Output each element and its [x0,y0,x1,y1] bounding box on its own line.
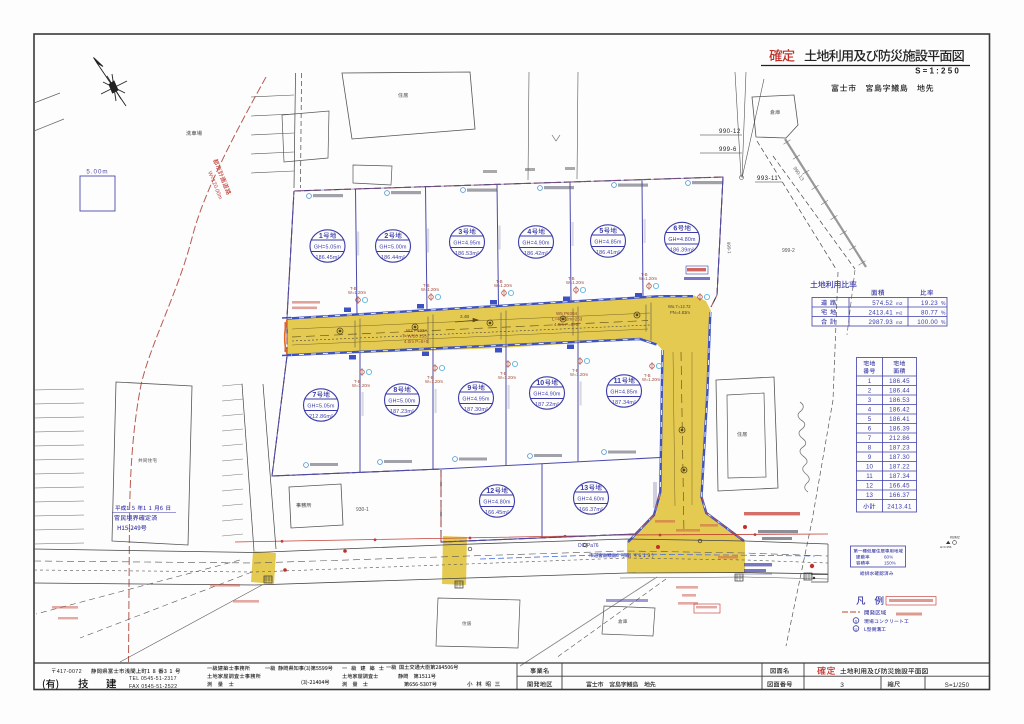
svg-text:2987.93: 2987.93 [869,319,894,326]
svg-text:GH=4.95m: GH=4.95m [453,241,481,247]
svg-text:1: 1 [868,378,872,385]
svg-text:5: 5 [599,228,603,235]
svg-text:PN=4.83m: PN=4.83m [670,310,690,315]
svg-text:GH=5.00m: GH=5.00m [379,245,407,251]
svg-text:GH=4.80m: GH=4.80m [483,500,511,506]
svg-text:S=1/250: S=1/250 [945,683,970,689]
svg-text:W2 P633A: W2 P633A [406,328,428,333]
svg-text:186.39m²: 186.39m² [670,247,694,253]
svg-text:m2: m2 [896,320,903,325]
svg-text:212.86: 212.86 [889,435,910,442]
svg-text:8: 8 [868,445,872,452]
svg-text:1: 1 [319,233,323,240]
svg-text:W=1.20m: W=1.20m [348,290,367,295]
svg-text:FAX 0545-51-2522: FAX 0545-51-2522 [129,684,177,690]
svg-text:2413.41: 2413.41 [869,309,894,316]
svg-text:W=1.20m: W=1.20m [566,280,585,285]
svg-text:T=W/20 253: T=W/20 253 [402,334,427,339]
svg-text:GH=5.00m: GH=5.00m [388,399,416,405]
svg-text:8: 8 [393,387,397,394]
svg-text:6: 6 [868,426,872,433]
svg-text:m2: m2 [896,301,903,306]
svg-text:187.22m²: 187.22m² [535,402,559,408]
svg-text:H=4.356: H=4.356 [940,545,952,549]
svg-text:W=1.20m: W=1.20m [425,379,444,384]
svg-text:19.23: 19.23 [921,300,938,307]
svg-text:5.00m: 5.00m [86,169,108,176]
svg-text:999-1: 999-1 [726,242,732,255]
svg-text:Wo.7=12.72: Wo.7=12.72 [668,304,691,309]
svg-text:150%: 150% [884,561,896,566]
svg-text:186.53: 186.53 [889,397,910,404]
svg-text:GH=4.85m: GH=4.85m [594,240,622,246]
svg-text:S: S [855,619,858,624]
svg-text:10: 10 [536,380,544,387]
svg-text:4: 4 [868,407,872,414]
svg-text:186.42: 186.42 [889,407,910,414]
svg-text:KBM2: KBM2 [950,536,960,540]
svg-text:9: 9 [467,385,471,392]
svg-text:3: 3 [458,229,462,236]
svg-text:187.23m²: 187.23m² [390,409,414,415]
svg-text:186.44: 186.44 [889,388,910,395]
svg-text:W=1.20m: W=1.20m [494,283,513,288]
svg-text:166.45m²: 166.45m² [485,510,509,516]
svg-text:GH=5.05m: GH=5.05m [307,404,335,410]
svg-text:W=1.20m: W=1.20m [642,377,661,382]
svg-text:GH=5.05m: GH=5.05m [314,245,342,251]
svg-text:12: 12 [866,483,873,490]
svg-text:GH=4.90m: GH=4.90m [522,241,550,247]
svg-text:〒417-0072: 〒417-0072 [51,668,82,675]
svg-text:187.30m²: 187.30m² [464,407,488,413]
svg-text:3: 3 [840,682,844,689]
svg-text:166.45: 166.45 [889,483,910,490]
svg-text:GH=4.80m: GH=4.80m [668,237,696,243]
svg-text:186.41: 186.41 [889,416,910,423]
svg-text:6: 6 [673,225,677,232]
svg-text:930-1: 930-1 [356,507,369,513]
svg-text:990-12: 990-12 [719,129,741,135]
svg-text:187.23: 187.23 [889,445,910,452]
svg-text:187.22: 187.22 [889,464,910,471]
svg-text:DC(Pa76: DC(Pa76 [578,543,599,549]
svg-text:999-2: 999-2 [782,248,795,254]
svg-text:60%: 60% [884,555,893,560]
svg-text:186.53m²: 186.53m² [455,251,479,257]
svg-text:187.34m²: 187.34m² [612,400,636,406]
svg-text:186.44m²: 186.44m² [381,255,405,261]
svg-text:10: 10 [866,464,873,471]
svg-text:2: 2 [868,388,872,395]
svg-text:2413.41: 2413.41 [887,504,912,511]
svg-text:L=48.72m=253: L=48.72m=253 [552,317,583,322]
svg-text:4: 4 [527,229,531,236]
svg-text:574.52: 574.52 [872,300,893,307]
svg-text:11: 11 [866,473,873,480]
svg-text:7: 7 [868,435,872,442]
svg-text:GH=4.85m: GH=4.85m [610,390,638,396]
svg-text:4.0m P=6+5: 4.0m P=6+5 [404,339,429,344]
svg-text:%: % [941,320,946,326]
svg-text:13: 13 [580,485,588,492]
svg-text:12: 12 [486,488,494,495]
svg-text:U: U [855,627,858,632]
svg-text:186.45m²: 186.45m² [316,255,340,261]
svg-text:186.39: 186.39 [889,426,910,433]
svg-text:5: 5 [868,416,872,423]
svg-text:2: 2 [384,233,388,240]
svg-text:%: % [941,301,946,307]
svg-text:7: 7 [312,392,316,399]
svg-text:3.4B: 3.4B [460,314,469,319]
svg-text:GH=4.60m: GH=4.60m [577,497,605,503]
svg-text:186.45: 186.45 [889,378,910,385]
svg-text:999-6: 999-6 [719,147,737,153]
svg-text:13: 13 [866,492,873,499]
svg-text:W=1.20m: W=1.20m [639,276,658,281]
svg-text:166.37m²: 166.37m² [579,507,603,513]
svg-text:4.0m P=6+5: 4.0m P=6+5 [554,322,579,327]
svg-text:11: 11 [614,378,622,385]
svg-text:212.86m²: 212.86m² [309,414,333,420]
svg-text:W=1.20m: W=1.20m [352,383,371,388]
svg-text:m2: m2 [896,310,903,315]
svg-text:W=1.20m: W=1.20m [498,375,517,380]
svg-text:187.30: 187.30 [889,454,910,461]
svg-text:S=1:250: S=1:250 [915,67,961,76]
svg-text:9: 9 [868,454,872,461]
svg-text:W=1.20m: W=1.20m [570,372,589,377]
svg-text:W=1.20m: W=1.20m [421,287,440,292]
svg-text:80.77: 80.77 [921,309,938,316]
svg-text:TEL 0545-51-2317: TEL 0545-51-2317 [129,676,177,682]
svg-text:100.00: 100.00 [917,319,938,326]
svg-text:W5 P6394: W5 P6394 [556,311,578,316]
svg-text:3: 3 [868,397,872,404]
svg-text:187.34: 187.34 [889,473,910,480]
svg-text:993-11: 993-11 [757,176,778,182]
svg-text:186.42m²: 186.42m² [524,251,548,257]
svg-text:GH=4.95m: GH=4.95m [462,397,490,403]
svg-text:GH=4.90m: GH=4.90m [533,392,561,398]
svg-text:166.37: 166.37 [889,492,910,499]
svg-text:186.41m²: 186.41m² [596,250,620,256]
svg-text:%: % [941,310,946,316]
